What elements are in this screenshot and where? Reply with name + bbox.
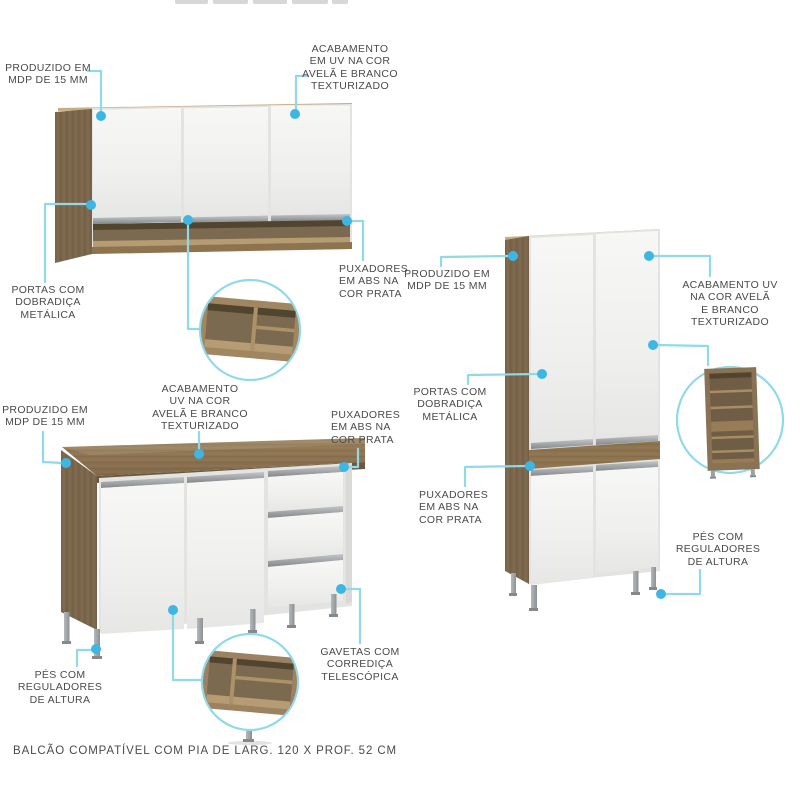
wall-cabinet-door-left bbox=[93, 108, 181, 220]
callout-dot bbox=[648, 340, 658, 350]
label-tall-handles: PUXADORES EM ABS NA COR PRATA bbox=[419, 489, 483, 526]
callout-dot bbox=[91, 644, 101, 654]
inset-leg-pad bbox=[243, 739, 254, 742]
tall-upper-door-left bbox=[531, 235, 593, 443]
tall-upper-door-right bbox=[596, 231, 658, 439]
base-cabinet bbox=[61, 438, 365, 659]
callout-dot bbox=[194, 449, 204, 459]
tall-lower-door-right bbox=[596, 467, 658, 574]
callout-dot bbox=[525, 461, 535, 471]
leg bbox=[531, 585, 537, 608]
leg-pad bbox=[248, 630, 257, 633]
inset-shelving-art bbox=[704, 367, 760, 479]
leader-base-feet bbox=[77, 650, 92, 666]
callout-dot bbox=[290, 109, 300, 119]
leg bbox=[633, 571, 639, 592]
callout-dot bbox=[86, 200, 96, 210]
label-base-handles: PUXADORES EM ABS NA COR PRATA bbox=[331, 409, 395, 446]
callout-dot bbox=[96, 111, 106, 121]
callout-dot bbox=[537, 369, 547, 379]
tall-cabinet bbox=[505, 229, 660, 611]
kitchen-set-product-diagram: PRODUZIDO EM MDP DE 15 MM ACABAMENTO EM … bbox=[0, 0, 800, 800]
label-wall-finish: ACABAMENTO EM UV NA COR AVELÃ E BRANCO T… bbox=[299, 43, 401, 93]
leg-pad bbox=[287, 625, 296, 628]
inset-leg bbox=[751, 469, 755, 475]
label-base-finish: ACABAMENTO UV NA COR AVELÃ E BRANCO TEXT… bbox=[148, 383, 252, 433]
callout-dot bbox=[61, 458, 71, 468]
callout-dot bbox=[644, 251, 654, 261]
base-cabinet-interior-inset bbox=[200, 634, 301, 745]
leg bbox=[64, 612, 70, 641]
callout-dot bbox=[339, 462, 349, 472]
drawer-1-front bbox=[268, 472, 343, 512]
leg-pad bbox=[92, 656, 102, 659]
wood-grain-overlay bbox=[61, 450, 97, 630]
callout-dot bbox=[168, 605, 178, 615]
callout-dot bbox=[342, 216, 352, 226]
leg bbox=[250, 609, 256, 630]
label-base-drawers: GAVETAS COM CORREDIÇA TELESCÓPICA bbox=[312, 646, 408, 683]
base-cabinet-right-edge bbox=[346, 463, 352, 604]
wall-cabinet-interior-inset bbox=[198, 280, 303, 380]
leg-pad bbox=[329, 614, 338, 617]
callout-dot bbox=[656, 589, 666, 599]
leg bbox=[289, 604, 295, 625]
leader-tall-feet bbox=[665, 570, 700, 594]
inset-leg-pad bbox=[750, 475, 756, 477]
tall-cabinet-interior-inset bbox=[677, 367, 783, 479]
label-base-feet: PÉS COM REGULADORES DE ALTURA bbox=[14, 669, 106, 706]
callout-dot bbox=[183, 215, 193, 225]
leg bbox=[331, 594, 337, 614]
drawer-2-front bbox=[268, 512, 343, 561]
label-tall-finish: ACABAMENTO UV NA COR AVELÃ E BRANCO TEXT… bbox=[682, 279, 778, 329]
leader-tall-produced bbox=[441, 256, 509, 266]
label-tall-produced: PRODUZIDO EM MDP DE 15 MM bbox=[402, 268, 492, 293]
wall-cabinet-door-right bbox=[271, 106, 350, 216]
leg-pad bbox=[529, 608, 538, 611]
label-tall-feet: PÉS COM REGULADORES DE ALTURA bbox=[672, 531, 764, 568]
callout-dot bbox=[336, 584, 346, 594]
leg bbox=[651, 567, 656, 587]
inset-drawer-band bbox=[711, 420, 753, 431]
leg-pad bbox=[649, 587, 657, 590]
leg-pad bbox=[631, 592, 640, 595]
wood-grain-overlay bbox=[55, 109, 92, 263]
label-wall-produced: PRODUZIDO EM MDP DE 15 MM bbox=[0, 62, 96, 87]
base-cabinet-door-right bbox=[187, 478, 264, 629]
leader-base-produced bbox=[43, 432, 62, 463]
leader-tall-inset bbox=[656, 345, 708, 365]
label-wall-doors: PORTAS COM DOBRADIÇA METÁLICA bbox=[2, 284, 94, 321]
label-base-produced: PRODUZIDO EM MDP DE 15 MM bbox=[0, 404, 90, 429]
leg bbox=[197, 618, 203, 641]
inset-interior-art bbox=[198, 296, 303, 362]
label-tall-doors: PORTAS COM DOBRADIÇA METÁLICA bbox=[404, 386, 496, 423]
wall-cabinet-door-middle bbox=[184, 107, 268, 218]
inset-interior-art bbox=[200, 650, 301, 716]
compatibility-note: BALCÃO COMPATÍVEL COM PIA DE LARG. 120 X… bbox=[13, 745, 393, 757]
callout-dot bbox=[508, 251, 518, 261]
leader-tall-finish bbox=[652, 256, 710, 276]
inset-leg-pad bbox=[710, 477, 716, 479]
leg bbox=[511, 573, 516, 593]
leg-pad bbox=[62, 641, 71, 644]
tall-lower-door-left bbox=[531, 472, 593, 585]
wall-cabinet bbox=[55, 103, 352, 263]
wood-grain-overlay bbox=[505, 236, 529, 584]
inset-leg bbox=[711, 471, 715, 477]
label-wall-handles: PUXADORES EM ABS NA COR PRATA bbox=[339, 263, 403, 300]
leg-pad bbox=[195, 641, 204, 644]
leg-pad bbox=[509, 593, 517, 596]
